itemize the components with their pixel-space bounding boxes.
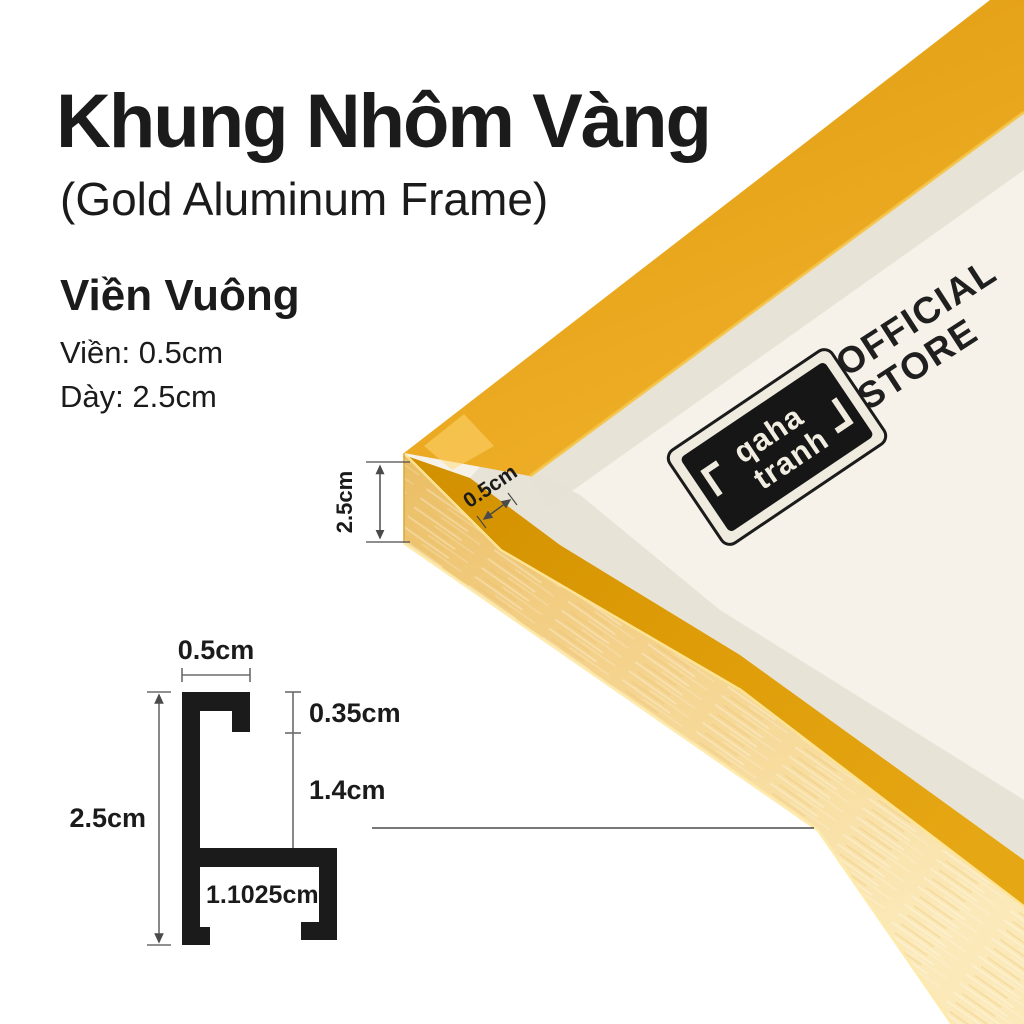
- spec-border-label: Viền: 0.5cm: [60, 336, 223, 370]
- profile-top-width-label: 0.5cm: [178, 635, 255, 665]
- thickness-dim-label: 2.5cm: [332, 471, 357, 533]
- page-subtitle: (Gold Aluminum Frame): [60, 176, 548, 222]
- profile-height-label: 2.5cm: [69, 803, 146, 833]
- profile-base-label: 1.1025cm: [206, 881, 319, 909]
- profile-mid-bar: [182, 848, 337, 867]
- profile-wall-label: 1.4cm: [309, 775, 386, 805]
- profile-lip-label: 0.35cm: [309, 698, 401, 728]
- page-title: Khung Nhôm Vàng: [56, 84, 710, 160]
- profile-top-lip: [232, 711, 250, 732]
- profile-left-wall: [182, 692, 200, 945]
- spec-depth-label: Dày: 2.5cm: [60, 380, 217, 414]
- profile-left-foot: [182, 927, 210, 945]
- profile-right-foot: [301, 922, 337, 940]
- poster: OFFICIAL STORE qaha tranh: [0, 0, 1024, 1024]
- spec-heading: Viền Vuông: [60, 274, 300, 318]
